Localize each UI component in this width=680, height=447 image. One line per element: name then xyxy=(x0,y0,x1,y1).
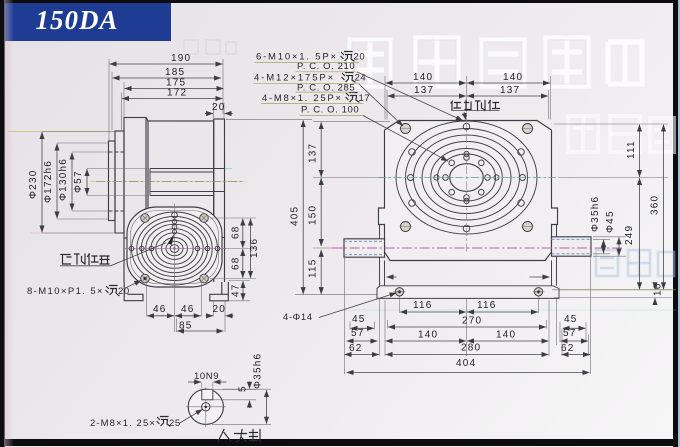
svg-text:Φ230: Φ230 xyxy=(28,170,39,199)
svg-text:140: 140 xyxy=(496,330,516,341)
svg-text:111: 111 xyxy=(626,140,637,159)
svg-text:115: 115 xyxy=(308,258,319,278)
svg-text:46: 46 xyxy=(181,304,195,315)
svg-text:4-M8×1. 25P×: 4-M8×1. 25P× xyxy=(262,93,343,104)
svg-text:Φ57: Φ57 xyxy=(73,170,84,193)
svg-text:172: 172 xyxy=(167,88,187,99)
svg-text:Φ35h6: Φ35h6 xyxy=(253,353,264,389)
svg-text:20: 20 xyxy=(118,286,130,297)
svg-text:85: 85 xyxy=(179,321,193,332)
svg-text:8-M10×P1. 5×: 8-M10×P1. 5× xyxy=(27,286,104,297)
svg-text:150: 150 xyxy=(308,205,319,225)
svg-text:137: 137 xyxy=(500,85,520,96)
svg-text:24: 24 xyxy=(355,73,367,84)
svg-text:Φ35h6: Φ35h6 xyxy=(590,196,601,232)
svg-text:2-M8×1. 25×: 2-M8×1. 25× xyxy=(90,418,156,429)
svg-text:140: 140 xyxy=(413,72,433,83)
svg-text:137: 137 xyxy=(414,85,434,96)
svg-text:116: 116 xyxy=(413,300,433,311)
svg-text:62: 62 xyxy=(349,343,363,354)
svg-text:Φ130h6: Φ130h6 xyxy=(58,158,69,201)
svg-text:20: 20 xyxy=(213,304,227,315)
svg-text:140: 140 xyxy=(503,72,523,83)
svg-text:140: 140 xyxy=(418,330,438,341)
svg-text:68: 68 xyxy=(231,225,242,239)
svg-text:47: 47 xyxy=(231,283,242,297)
svg-text:404: 404 xyxy=(456,358,476,369)
svg-text:4-Φ14: 4-Φ14 xyxy=(283,312,313,323)
svg-text:57: 57 xyxy=(563,328,577,339)
svg-text:17: 17 xyxy=(359,93,371,104)
svg-text:270: 270 xyxy=(462,316,482,327)
svg-text:116: 116 xyxy=(477,300,497,311)
svg-text:16: 16 xyxy=(653,282,664,296)
svg-text:46: 46 xyxy=(153,304,167,315)
svg-text:360: 360 xyxy=(650,195,661,215)
svg-text:P. C. O. 100: P. C. O. 100 xyxy=(301,105,359,116)
svg-text:20: 20 xyxy=(354,52,366,63)
svg-text:45: 45 xyxy=(352,314,366,325)
svg-text:57: 57 xyxy=(351,328,365,339)
svg-text:280: 280 xyxy=(461,343,481,354)
svg-text:249: 249 xyxy=(624,225,635,245)
svg-text:185: 185 xyxy=(165,67,185,78)
svg-text:Φ45: Φ45 xyxy=(605,210,616,233)
svg-text:5: 5 xyxy=(238,385,249,392)
svg-text:10N9: 10N9 xyxy=(194,371,219,382)
svg-text:137: 137 xyxy=(308,143,319,163)
svg-text:190: 190 xyxy=(171,53,191,64)
svg-text:Φ172h6: Φ172h6 xyxy=(43,160,54,203)
svg-text:68: 68 xyxy=(231,256,242,270)
svg-text:62: 62 xyxy=(561,343,575,354)
svg-text:45: 45 xyxy=(564,314,578,325)
svg-text:405: 405 xyxy=(290,206,301,226)
svg-text:20: 20 xyxy=(212,102,226,113)
svg-text:136: 136 xyxy=(249,238,260,258)
